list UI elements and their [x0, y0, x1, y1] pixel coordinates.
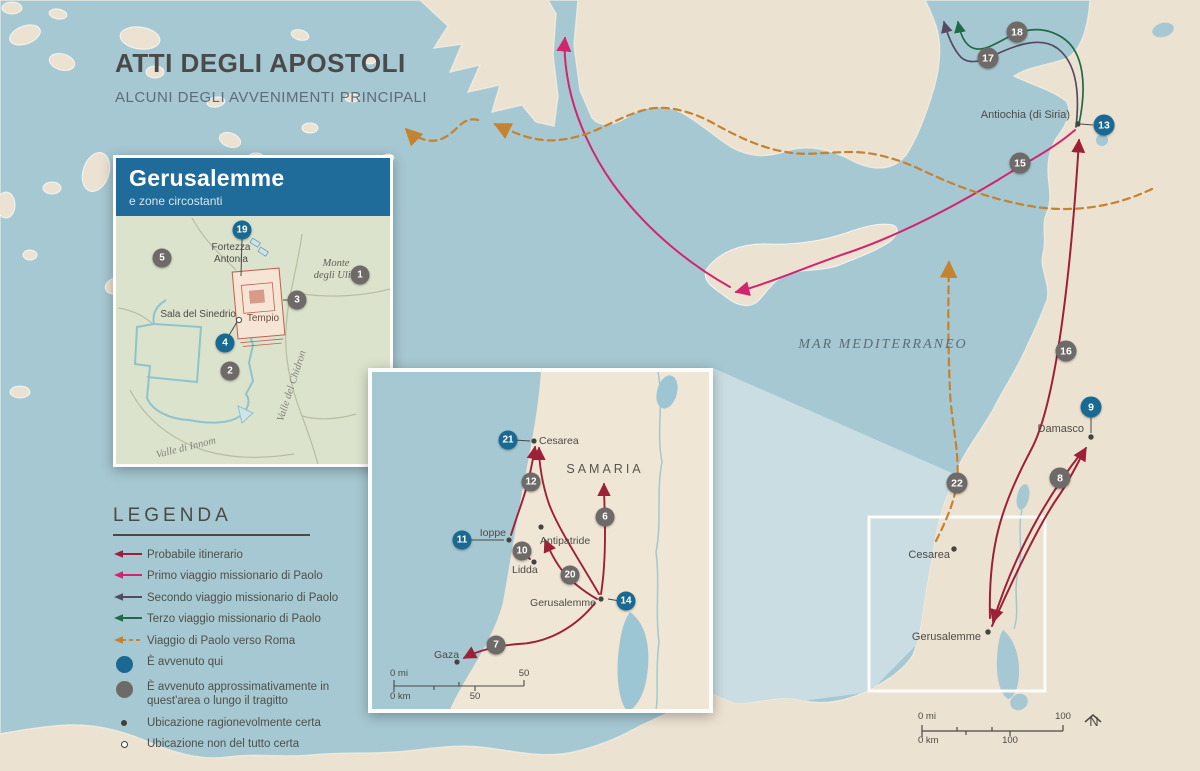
legend-divider	[113, 534, 310, 536]
marker-20: 20	[561, 566, 580, 585]
marker-4: 4	[216, 334, 235, 353]
label-cesarea-inset: Cesarea	[539, 435, 579, 447]
marker-21: 21	[499, 431, 518, 450]
jerusalem-inset: Gerusalemme e zone circostanti Fortezza …	[113, 155, 393, 467]
legend-item-first-journey: Primo viaggio missionario di Paolo	[113, 569, 385, 583]
map-canvas: ATTI DEGLI APOSTOLI ALCUNI DEGLI AVVENIM…	[0, 0, 1200, 771]
marker-8: 8	[1050, 468, 1071, 489]
inset-dead-sea	[617, 612, 648, 709]
marker-10: 10	[513, 542, 532, 561]
marker-14: 14	[617, 592, 636, 611]
label-ioppe: Ioppe	[466, 527, 506, 539]
inset-galilee	[653, 373, 681, 411]
label-gaza: Gaza	[434, 649, 459, 661]
label-damasco: Damasco	[1020, 423, 1084, 436]
label-sala-sinedrio: Sala del Sinedrio	[146, 309, 236, 321]
label-antiochia: Antiochia (di Siria)	[958, 109, 1070, 122]
pools	[250, 238, 268, 256]
marker-11: 11	[453, 531, 472, 550]
scale-mi100: 100	[1050, 711, 1076, 722]
marker-22: 22	[947, 473, 968, 494]
title-block: ATTI DEGLI APOSTOLI ALCUNI DEGLI AVVENIM…	[115, 48, 427, 106]
legend-item-third-journey: Terzo viaggio missionario di Paolo	[113, 612, 385, 626]
legend-item-location-certain: Ubicazione ragionevolmente certa	[113, 716, 385, 730]
second-journey-icon	[113, 591, 147, 602]
label-fortezza-antonia: Fortezza Antonia	[212, 242, 251, 265]
probable-route-icon	[113, 548, 147, 559]
marker-3: 3	[288, 291, 307, 310]
label-lidda: Lidda	[512, 564, 538, 576]
marker-2: 2	[221, 362, 240, 381]
legend-title: LEGENDA	[113, 505, 385, 527]
marker-7: 7	[487, 636, 506, 655]
gray-circle-icon	[113, 680, 147, 698]
label-cesarea-main: Cesarea	[888, 549, 950, 562]
label-tempio: Tempio	[247, 313, 279, 325]
rome-journey-icon	[113, 634, 147, 645]
scale-mi0: 0 mi	[918, 711, 936, 722]
label-gerusalemme-inset: Gerusalemme	[516, 597, 596, 609]
inset-scale-km0: 0 km	[390, 691, 411, 702]
third-journey-icon	[113, 612, 147, 623]
inset-scale-mi50: 50	[514, 668, 534, 679]
inset-scale-mi0: 0 mi	[390, 668, 408, 679]
legend-item-happened-here: È avvenuto qui	[113, 655, 385, 673]
north-label: N	[1085, 714, 1103, 729]
blue-circle-icon	[113, 655, 147, 673]
legend-item-probable: Probabile itinerario	[113, 548, 385, 562]
legend-item-location-uncertain: Ubicazione non del tutto certa	[113, 737, 385, 751]
label-samaria: SAMARIA	[566, 462, 643, 476]
jerusalem-inset-subtitle: e zone circostanti	[129, 194, 390, 208]
marker-9: 9	[1081, 397, 1102, 418]
marker-1: 1	[351, 266, 370, 285]
inset-jordan-river	[656, 372, 662, 709]
label-mar-mediterraneo: MAR MEDITERRANEO	[798, 337, 967, 353]
inset-scale-km50: 50	[465, 691, 485, 702]
temple-complex	[232, 268, 285, 347]
north-indicator: N	[1085, 713, 1103, 729]
marker-17: 17	[978, 48, 999, 69]
marker-18: 18	[1007, 22, 1028, 43]
page-title: ATTI DEGLI APOSTOLI	[115, 48, 427, 79]
marker-6: 6	[596, 508, 615, 527]
sinedrio-dot	[236, 317, 241, 322]
samaria-inset: SAMARIA Cesarea Ioppe Antipatride Lidda …	[368, 368, 713, 713]
open-dot-icon	[113, 737, 147, 748]
label-antipatride: Antipatride	[540, 535, 590, 547]
marker-12: 12	[522, 473, 541, 492]
marker-16: 16	[1056, 341, 1077, 362]
scale-km100: 100	[997, 735, 1023, 746]
jerusalem-inset-header: Gerusalemme e zone circostanti	[116, 158, 390, 216]
marker-19: 19	[233, 221, 252, 240]
page-subtitle: ALCUNI DEGLI AVVENIMENTI PRINCIPALI	[115, 89, 427, 106]
jerusalem-inset-title: Gerusalemme	[129, 165, 390, 192]
marker-15: 15	[1010, 153, 1031, 174]
first-journey-icon	[113, 569, 147, 580]
legend-item-happened-approx: È avvenuto approssimativamente in quest'…	[113, 680, 385, 709]
scale-km0: 0 km	[918, 735, 939, 746]
filled-dot-icon	[113, 716, 147, 726]
marker-5: 5	[153, 249, 172, 268]
legend: LEGENDA Probabile itinerario Primo viagg…	[113, 505, 385, 758]
label-gerusalemme-main: Gerusalemme	[893, 631, 981, 644]
legend-item-second-journey: Secondo viaggio missionario di Paolo	[113, 591, 385, 605]
legend-item-rome-journey: Viaggio di Paolo verso Roma	[113, 634, 385, 648]
marker-13: 13	[1094, 115, 1115, 136]
